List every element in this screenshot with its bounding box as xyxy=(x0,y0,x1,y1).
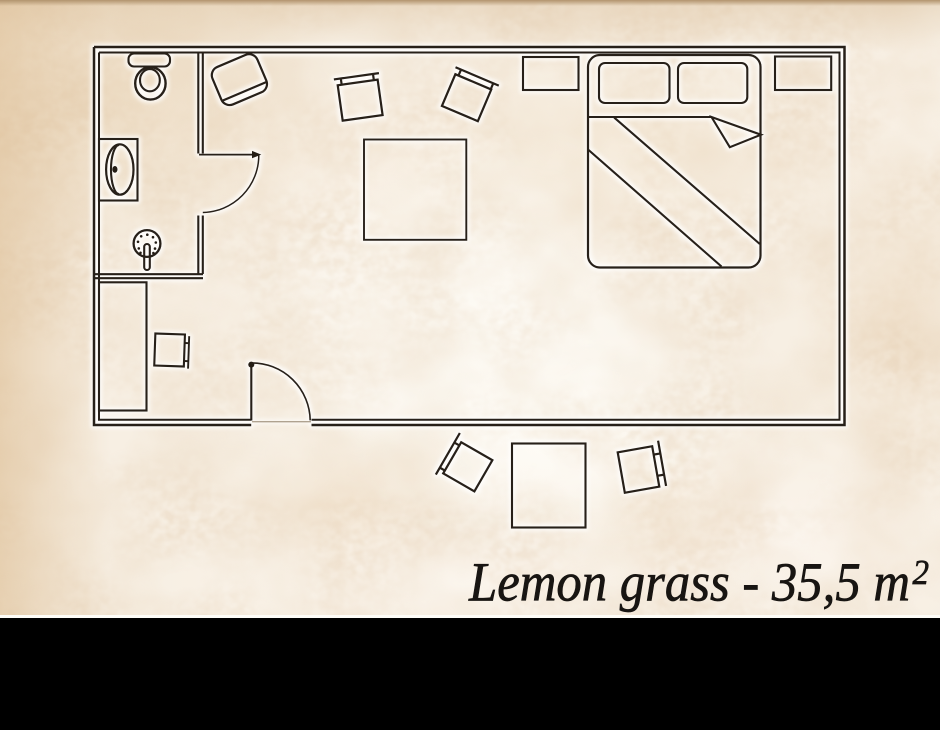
svg-text:2: 2 xyxy=(913,553,930,592)
svg-text:Lemon grass - 35,5 m: Lemon grass - 35,5 m xyxy=(468,552,910,613)
